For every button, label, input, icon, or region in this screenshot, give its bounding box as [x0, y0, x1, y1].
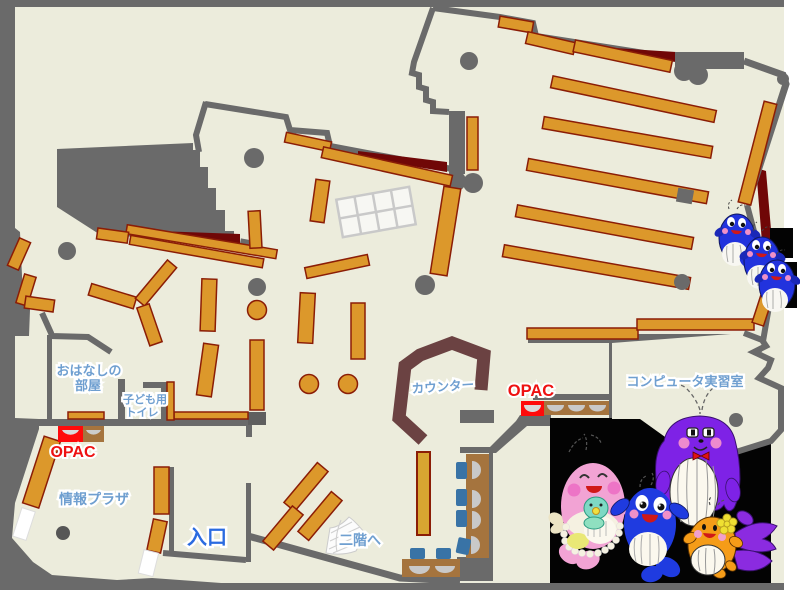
svg-text:おはなしの: おはなしの — [56, 363, 121, 378]
svg-text:情報プラザ: 情報プラザ — [59, 491, 129, 507]
svg-text:入口: 入口 — [187, 526, 227, 549]
svg-text:OPAC: OPAC — [508, 382, 555, 400]
svg-text:コンピュータ実習室: コンピュータ実習室 — [626, 374, 743, 389]
svg-text:OPAC: OPAC — [50, 444, 95, 461]
svg-text:トイレ: トイレ — [126, 406, 159, 419]
svg-text:部屋: 部屋 — [75, 378, 101, 393]
svg-text:子ども用: 子ども用 — [123, 393, 167, 406]
svg-text:二階へ: 二階へ — [339, 532, 381, 548]
